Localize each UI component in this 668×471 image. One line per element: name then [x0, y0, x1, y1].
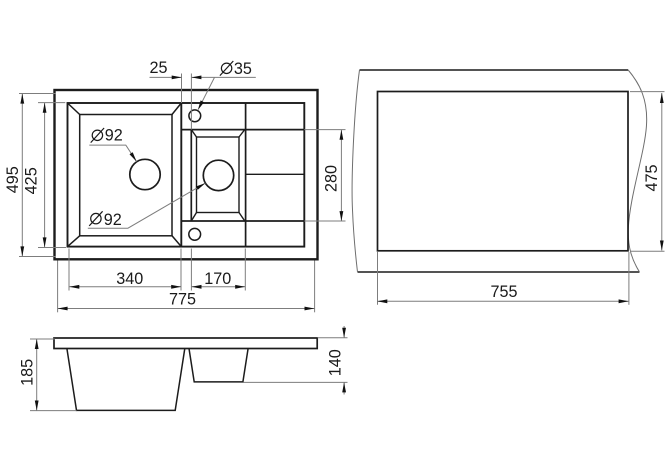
svg-text:25: 25 [149, 59, 167, 77]
svg-text:425: 425 [23, 167, 41, 194]
svg-text:92: 92 [104, 211, 122, 229]
svg-text:280: 280 [323, 165, 341, 192]
svg-text:475: 475 [643, 164, 661, 191]
svg-text:185: 185 [19, 359, 37, 386]
svg-text:755: 755 [490, 283, 517, 301]
svg-text:35: 35 [234, 60, 252, 78]
svg-text:170: 170 [204, 270, 231, 288]
svg-text:340: 340 [116, 270, 143, 288]
svg-text:140: 140 [326, 349, 344, 376]
svg-text:495: 495 [4, 166, 22, 193]
svg-text:775: 775 [169, 291, 196, 309]
svg-text:92: 92 [105, 127, 123, 145]
